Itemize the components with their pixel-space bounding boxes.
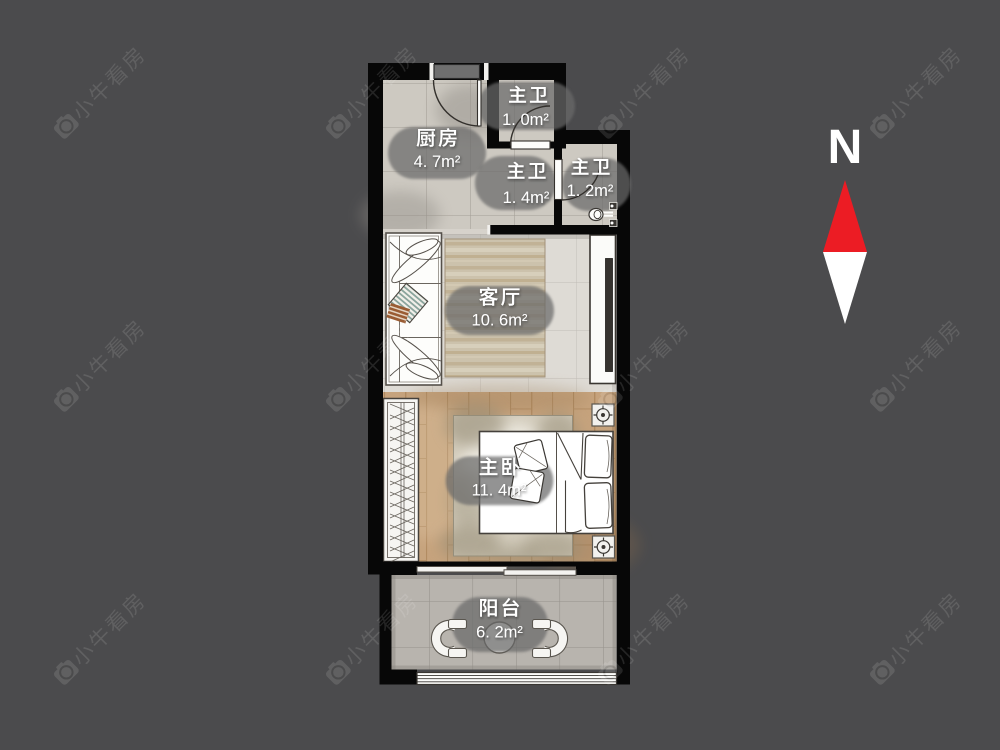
svg-text:6. 2m²: 6. 2m² (476, 623, 523, 641)
svg-text:11. 4m²: 11. 4m² (472, 481, 527, 499)
svg-text:N: N (828, 121, 863, 174)
svg-text:10. 6m²: 10. 6m² (472, 311, 528, 329)
svg-text:1. 2m²: 1. 2m² (567, 182, 614, 200)
svg-text:4. 7m²: 4. 7m² (414, 153, 461, 171)
svg-text:1. 0m²: 1. 0m² (502, 111, 549, 129)
svg-text:1. 4m²: 1. 4m² (503, 189, 550, 207)
